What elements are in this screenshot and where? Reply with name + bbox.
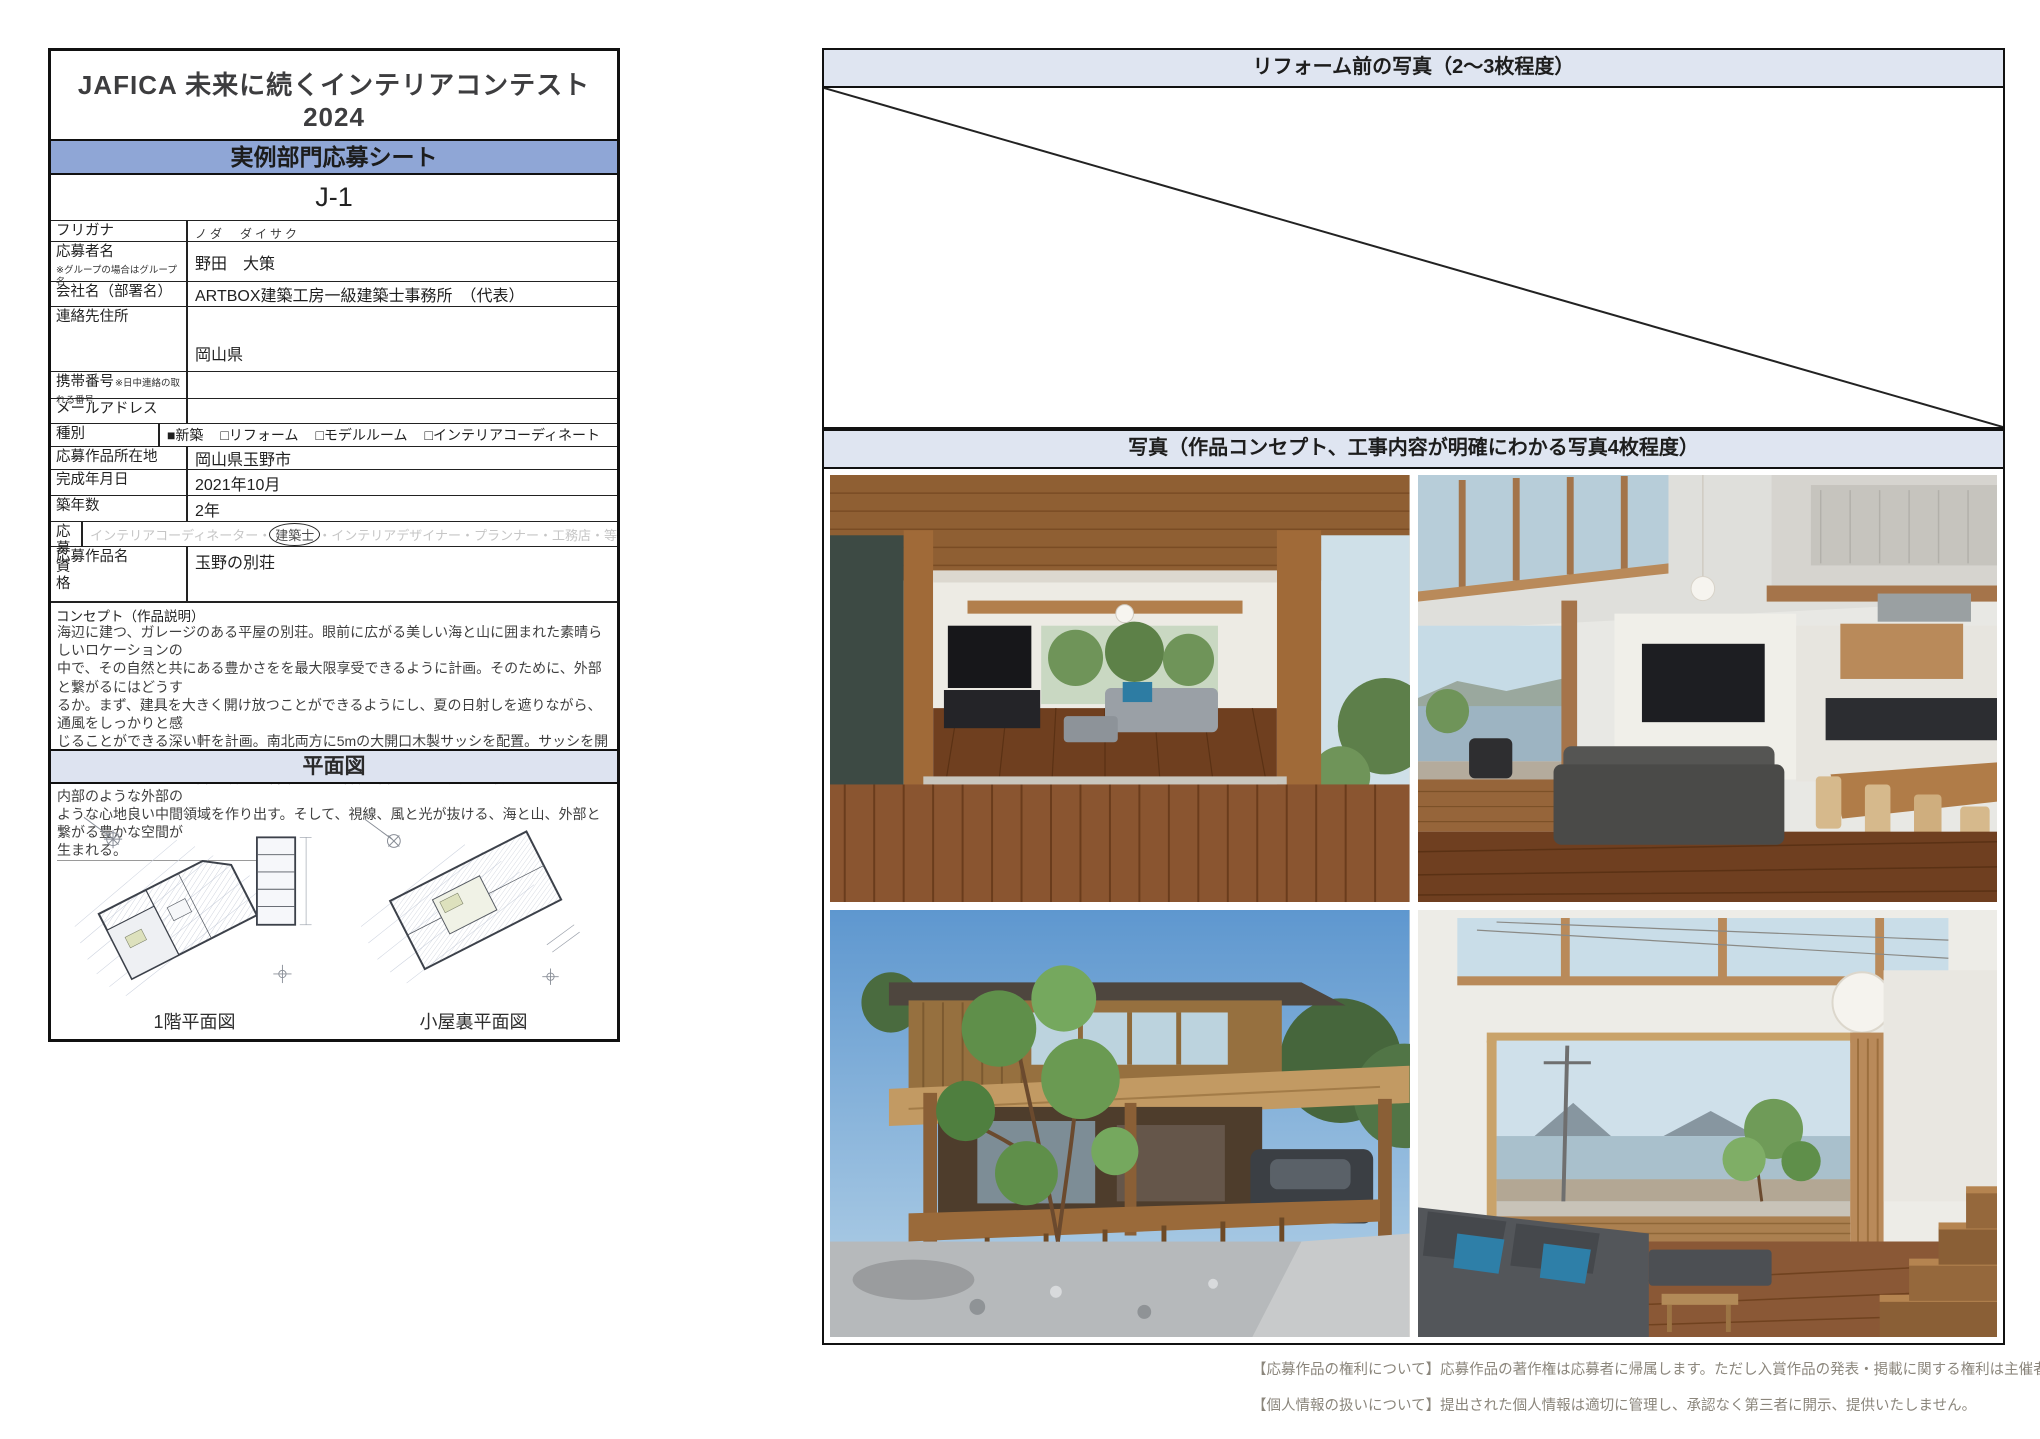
qualification-circled-architect: 建築士 <box>269 523 320 546</box>
concept-text: 海辺に建つ、ガレージのある平屋の別荘。眼前に広がる美しい海と山に囲まれた素晴らし… <box>51 621 617 749</box>
before-photos-banner: リフォーム前の写真（2〜3枚程度） <box>824 50 2003 88</box>
photos-section: 写真（作品コンセプト、工事内容が明確にわかる写真4枚程度） <box>822 429 2005 1345</box>
form-row-work-title: 応募作品名 玉野の別荘 <box>51 546 617 601</box>
photo-panel: リフォーム前の写真（2〜3枚程度） 写真（作品コンセプト、工事内容が明確にわかる… <box>822 48 2005 1345</box>
field-value: 2年 <box>188 496 617 521</box>
form-row-qualification: 応募資格 インテリアコーディネーター・建築士・インテリアデザイナー・プランナー・… <box>51 521 617 546</box>
dimension-ticks <box>546 925 579 952</box>
plan-body <box>390 831 561 969</box>
qualification-value: インテリアコーディネーター・建築士・インテリアデザイナー・プランナー・工務店・等 <box>83 522 617 546</box>
floorplan-caption: 1階平面図 <box>153 1008 235 1034</box>
form-row-category: 種別 ■新築 □リフォーム □モデルルーム □インテリアコーディネート <box>51 423 617 446</box>
contest-title: JAFICA 未来に続くインテリアコンテスト 2024 <box>51 51 617 133</box>
before-photos-section: リフォーム前の写真（2〜3枚程度） <box>822 48 2005 429</box>
not-applicable-area <box>824 88 2003 427</box>
diagonal-strike-line <box>824 88 2003 427</box>
field-value <box>188 399 617 423</box>
field-value: ARTBOX建築工房一級建築士事務所 （代表） <box>188 282 617 306</box>
field-value: 岡山県玉野市 <box>188 447 617 469</box>
entry-form: JAFICA 未来に続くインテリアコンテスト 2024 キズナでつながろう、共創… <box>48 48 620 1042</box>
qualification-list-before: インテリアコーディネーター・ <box>90 525 271 544</box>
field-value: 2021年10月 <box>188 470 617 495</box>
photo-interior-sofa-harbor-view <box>1418 910 1998 1337</box>
compass-icon <box>273 965 291 983</box>
field-value: ノダ ダイサク <box>188 221 617 241</box>
sheet-type-banner: 実例部門応募シート <box>51 139 617 175</box>
floorplan-area: 1階平面図 <box>51 784 617 1039</box>
privacy-note: 【個人情報の扱いについて】提出された個人情報は適切に管理し、承認なく第三者に開示… <box>1252 1388 2040 1424</box>
field-value: 岡山県 <box>188 307 617 371</box>
field-label: メールアドレス <box>51 399 188 423</box>
floorplan-caption: 小屋裏平面図 <box>420 1008 528 1034</box>
field-label: 会社名（部署名） <box>51 282 188 306</box>
form-row-location: 応募作品所在地 岡山県玉野市 <box>51 446 617 469</box>
deck-pier-wing <box>256 837 311 924</box>
form-row-email: メールアドレス <box>51 398 617 423</box>
field-label: 応募者名※グループの場合はグループ名 <box>51 242 188 281</box>
field-value <box>188 372 617 398</box>
floorplan-first-floor: 1階平面図 <box>55 790 334 1039</box>
photos-banner: 写真（作品コンセプト、工事内容が明確にわかる写真4枚程度） <box>824 431 2003 469</box>
photo-exterior-garage-tree <box>830 910 1410 1337</box>
field-label: フリガナ <box>51 221 188 241</box>
photo-living-dining-sea-view <box>1418 475 1998 902</box>
category-options: ■新築 □リフォーム □モデルルーム □インテリアコーディネート <box>160 424 617 446</box>
concept-line: 中で、その自然と共にある豊かさをを最大限享受できるように計画。そのために、外部と… <box>57 659 613 695</box>
entry-number: J-1 <box>51 175 617 220</box>
form-row-applicant-name: 応募者名※グループの場合はグループ名 野田 大策 <box>51 241 617 281</box>
form-row-address: 連絡先住所 岡山県 <box>51 306 617 371</box>
field-label: 応募作品所在地 <box>51 447 188 469</box>
field-label: 種別 <box>51 424 160 446</box>
checkbox-modelroom: □モデルルーム <box>315 425 407 445</box>
compass-icon <box>542 968 558 984</box>
footer-notes: 【応募作品の権利について】応募作品の著作権は応募者に帰属します。ただし入賞作品の… <box>1252 1352 2040 1424</box>
field-label: 携帯番号※日中連絡の取れる番号 <box>51 372 188 398</box>
contest-header: JAFICA 未来に続くインテリアコンテスト 2024 キズナでつながろう、共創… <box>51 51 617 139</box>
floorplan-drawing-1 <box>60 790 330 1004</box>
plan-body <box>98 850 256 979</box>
form-row-phone: 携帯番号※日中連絡の取れる番号 <box>51 371 617 398</box>
concept-heading: コンセプト（作品説明） <box>51 601 617 621</box>
field-label: 連絡先住所 <box>51 307 188 371</box>
checkbox-interior-coordinate: □インテリアコーディネート <box>425 425 600 445</box>
floorplan-attic: 小屋裏平面図 <box>334 790 613 1039</box>
north-arrow-icon <box>83 817 121 848</box>
field-label: 築年数 <box>51 496 188 521</box>
photo-grid <box>824 469 2003 1343</box>
checkbox-reform: □リフォーム <box>220 425 298 445</box>
floorplan-drawing-2 <box>339 790 609 1004</box>
photo-deck-into-living-room <box>830 475 1410 902</box>
concept-line: 海辺に建つ、ガレージのある平屋の別荘。眼前に広がる美しい海と山に囲まれた素晴らし… <box>57 623 613 659</box>
field-label: 応募作品名 <box>51 547 188 601</box>
field-value: 野田 大策 <box>188 242 617 281</box>
form-row-completion-date: 完成年月日 2021年10月 <box>51 469 617 495</box>
qualification-list-after: ・インテリアデザイナー・プランナー・工務店・等 <box>318 525 617 544</box>
concept-line: るか。まず、建具を大きく開け放つことができるようにし、夏の日射しを遮りながら、通… <box>57 696 613 732</box>
form-row-company: 会社名（部署名） ARTBOX建築工房一級建築士事務所 （代表） <box>51 281 617 306</box>
application-sheet: JAFICA 未来に続くインテリアコンテスト 2024 キズナでつながろう、共創… <box>0 0 2040 1439</box>
field-label: 応募資格 <box>51 522 83 546</box>
form-row-furigana: フリガナ ノダ ダイサク <box>51 220 617 241</box>
form-row-building-age: 築年数 2年 <box>51 495 617 521</box>
rights-note: 【応募作品の権利について】応募作品の著作権は応募者に帰属します。ただし入賞作品の… <box>1252 1352 2040 1388</box>
checkbox-shinchiku-checked: ■新築 <box>167 425 203 445</box>
floorplan-banner: 平面図 <box>51 749 617 784</box>
field-value: 玉野の別荘 <box>188 547 617 601</box>
field-label: 完成年月日 <box>51 470 188 495</box>
north-arrow-icon <box>364 819 400 847</box>
